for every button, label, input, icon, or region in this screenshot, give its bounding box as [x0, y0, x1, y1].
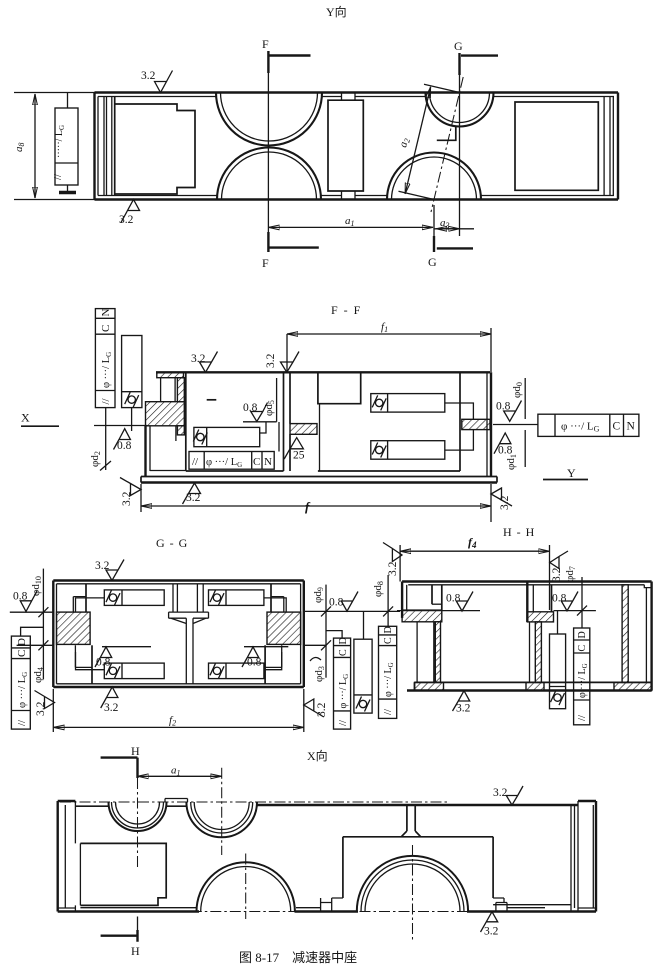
svg-text:C: C	[253, 456, 260, 468]
svg-text:G - G: G - G	[156, 536, 188, 550]
svg-text:3.2: 3.2	[484, 926, 499, 938]
svg-text:F: F	[262, 256, 269, 270]
svg-text:3.2: 3.2	[141, 70, 156, 82]
svg-text://: //	[100, 397, 112, 404]
svg-text://: //	[52, 173, 64, 180]
svg-text:D: D	[16, 638, 28, 646]
svg-text:X: X	[21, 411, 30, 425]
svg-text:C: C	[16, 650, 28, 657]
svg-text:0.8: 0.8	[117, 440, 132, 452]
svg-text:C: C	[613, 421, 621, 433]
svg-text:3.2: 3.2	[121, 491, 133, 506]
svg-text:C: C	[100, 325, 112, 332]
svg-text://: //	[382, 708, 394, 715]
svg-text:φ ···/ LG: φ ···/ LG	[101, 352, 113, 388]
svg-text:0.8: 0.8	[247, 657, 262, 669]
svg-text:C: C	[338, 649, 349, 656]
svg-text://: //	[16, 719, 28, 726]
svg-text:3.2: 3.2	[387, 561, 399, 576]
svg-text:H - H: H - H	[503, 525, 535, 539]
svg-text:Y: Y	[567, 466, 576, 480]
svg-text:3.2: 3.2	[191, 353, 206, 365]
svg-text:G: G	[428, 255, 437, 269]
svg-text:H: H	[131, 944, 140, 958]
svg-text:C: C	[383, 637, 394, 644]
svg-text:3.2: 3.2	[551, 567, 563, 582]
svg-text://: //	[192, 456, 199, 468]
svg-text:3.2: 3.2	[493, 787, 508, 799]
svg-text:F: F	[262, 37, 269, 51]
svg-text:φ ···/ LG: φ ···/ LG	[17, 672, 29, 708]
svg-text:D: D	[577, 631, 588, 638]
svg-text:φ ···/ LG: φ ···/ LG	[206, 457, 242, 469]
svg-text:F - F: F - F	[331, 303, 362, 317]
svg-text:N: N	[264, 456, 272, 468]
svg-text:D: D	[383, 626, 394, 633]
svg-text:图 8-17 减速器中座: 图 8-17 减速器中座	[239, 950, 357, 965]
svg-text:0.8: 0.8	[243, 402, 258, 414]
svg-text:N: N	[100, 309, 112, 317]
svg-text:D: D	[338, 637, 349, 644]
svg-text://: //	[337, 719, 349, 726]
svg-text:0.8: 0.8	[96, 657, 111, 669]
svg-text:G: G	[454, 39, 463, 53]
svg-text:X向: X向	[307, 748, 328, 763]
svg-text:H: H	[131, 744, 140, 758]
svg-text:3.2: 3.2	[104, 702, 119, 714]
svg-text:C: C	[577, 645, 588, 652]
svg-text:φ ···/ LG: φ ···/ LG	[383, 662, 395, 697]
svg-text:3.2: 3.2	[456, 703, 471, 715]
svg-text:3.2: 3.2	[119, 214, 134, 226]
svg-text:Y向: Y向	[326, 4, 347, 19]
svg-text:0.8: 0.8	[552, 593, 567, 605]
svg-text:3.2: 3.2	[265, 353, 277, 368]
svg-text://: //	[576, 714, 588, 721]
svg-text:0.8: 0.8	[446, 593, 461, 605]
svg-text:φ ···/ LG: φ ···/ LG	[338, 674, 350, 709]
svg-text:φ ···/ LG: φ ···/ LG	[577, 663, 589, 698]
svg-text:25: 25	[293, 450, 305, 462]
svg-text:N: N	[627, 421, 636, 433]
svg-text:3.2: 3.2	[316, 702, 328, 717]
